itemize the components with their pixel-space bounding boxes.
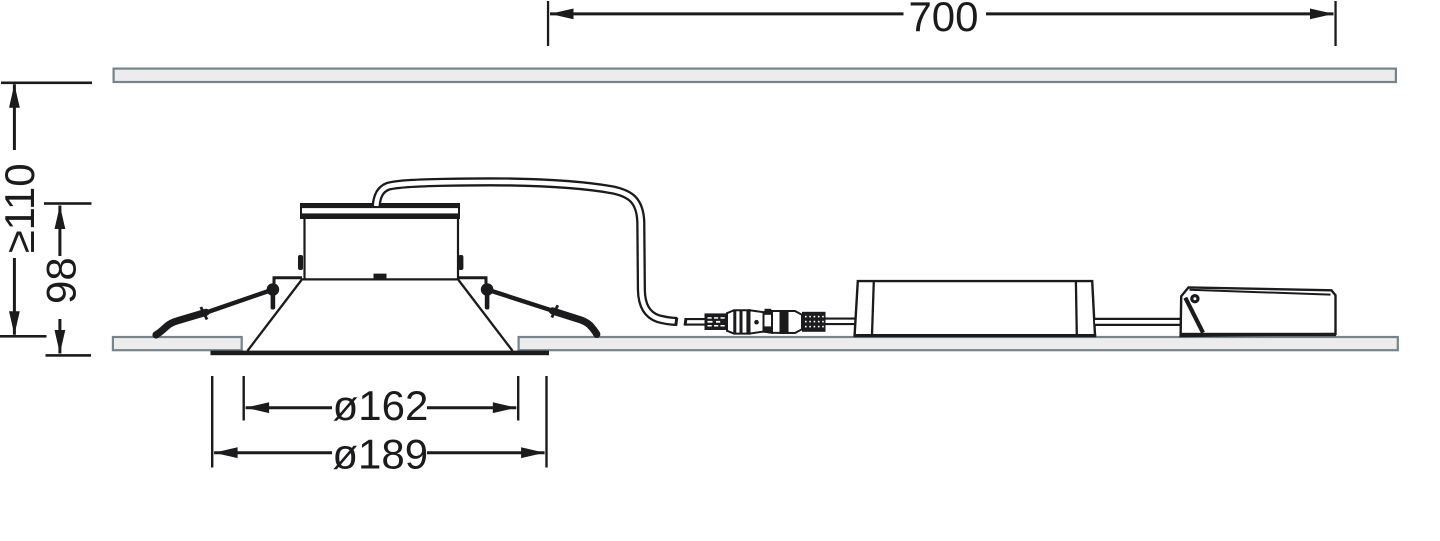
svg-text:ø189: ø189: [332, 430, 428, 477]
svg-text:98: 98: [37, 257, 84, 304]
svg-text:700: 700: [908, 0, 978, 40]
svg-text:≥110: ≥110: [0, 163, 43, 253]
svg-text:ø162: ø162: [333, 382, 429, 429]
